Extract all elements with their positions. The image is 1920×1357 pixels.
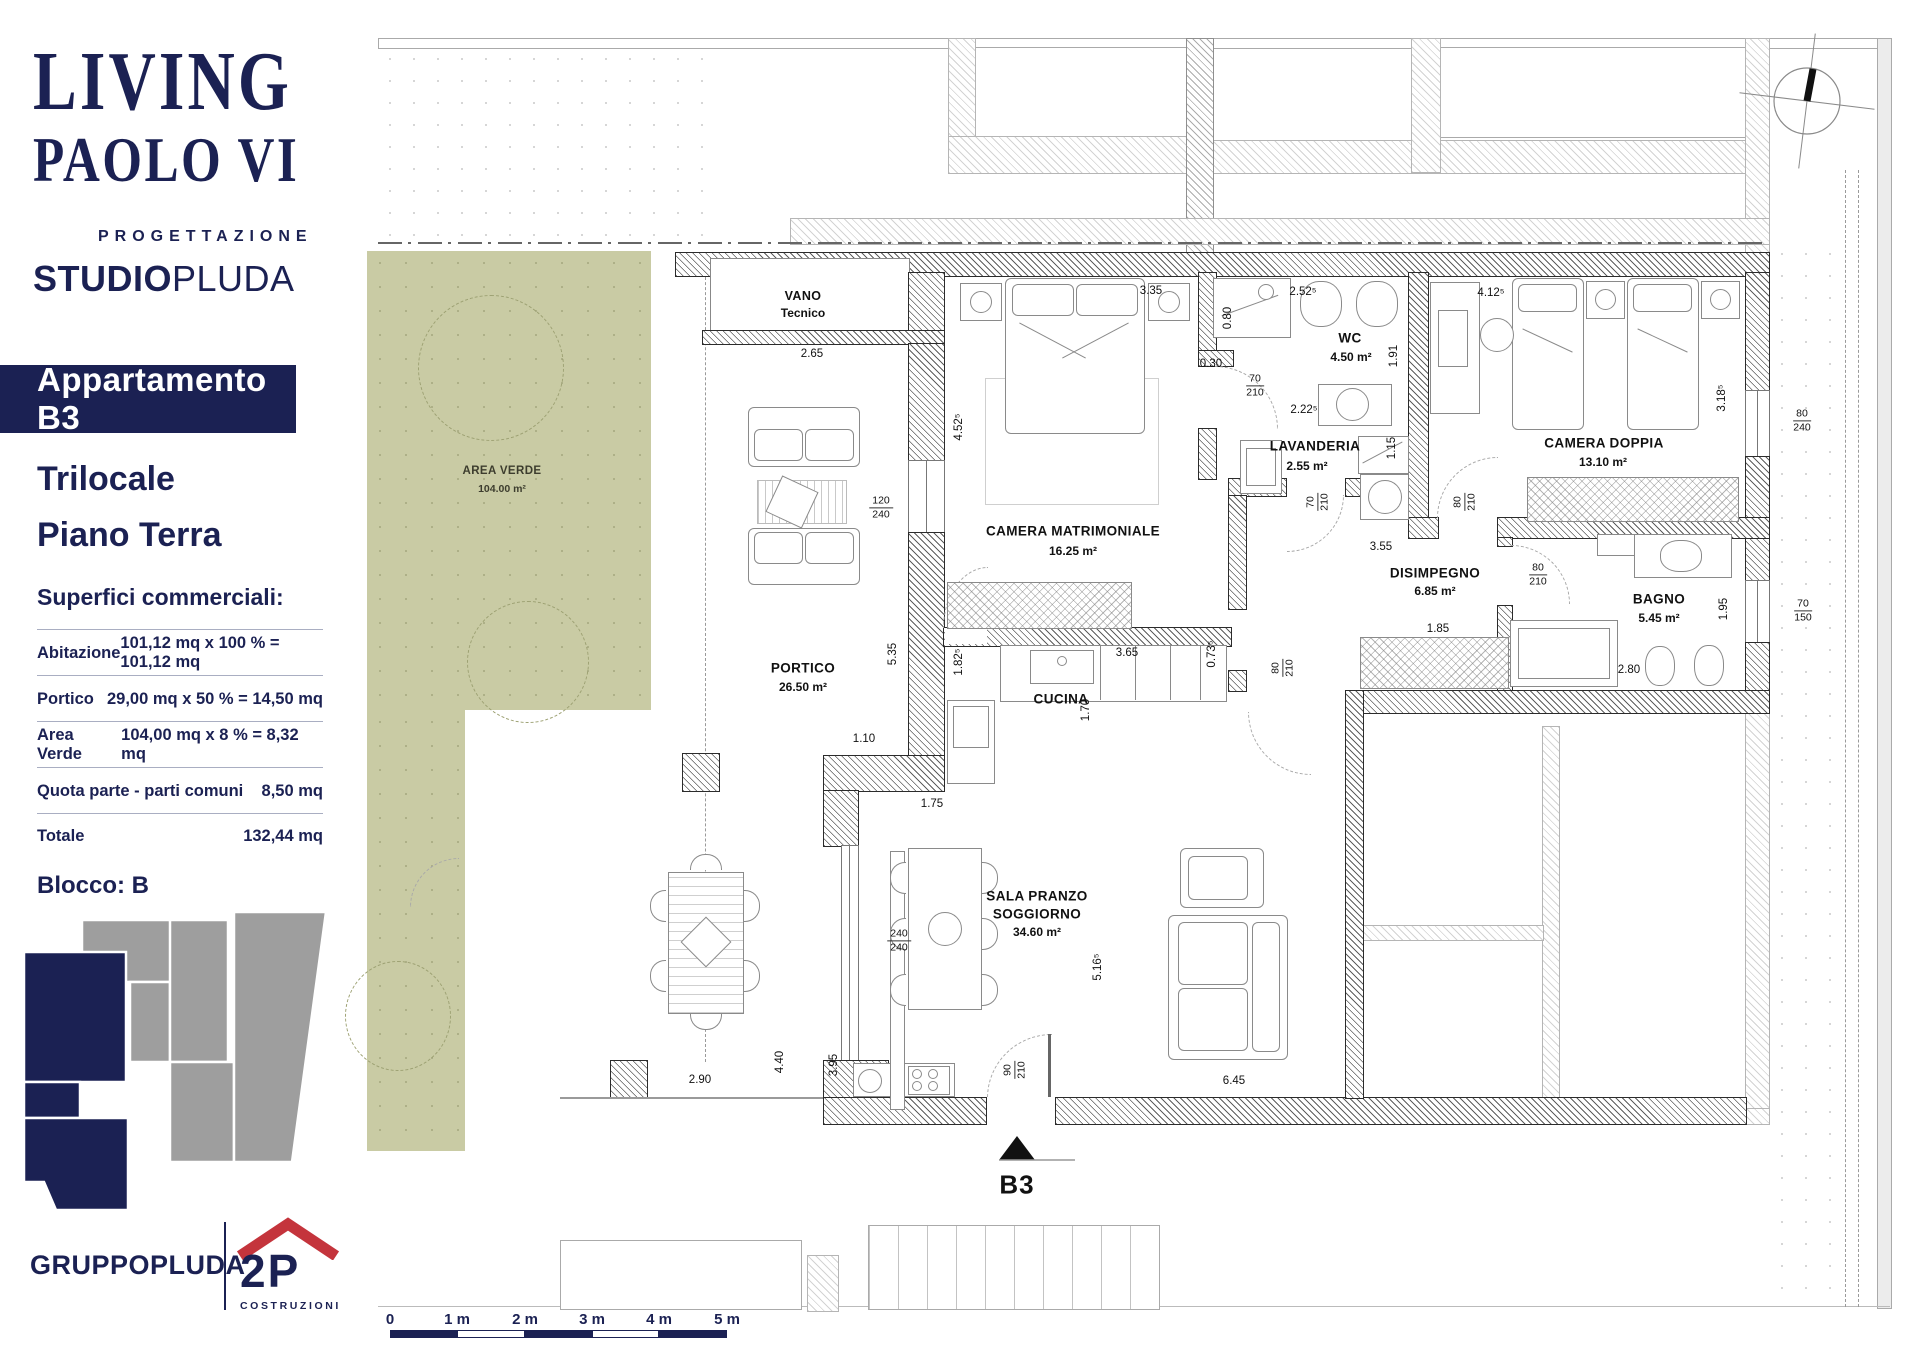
room-label-vano: VANO: [785, 289, 822, 303]
door-height: 210: [1466, 493, 1479, 511]
room-area: 16.25 m²: [1049, 544, 1097, 558]
scale-bar-segment: [390, 1330, 457, 1338]
scale-bar-segment: [592, 1330, 659, 1338]
door-width: 80: [1451, 493, 1465, 511]
dimension: 1.70: [1080, 699, 1092, 721]
toilet: [1645, 646, 1675, 686]
dimension: 1.82⁵: [953, 648, 965, 675]
wall-south: [823, 1097, 987, 1125]
window-size: 70 150: [1794, 597, 1812, 624]
scale-label: 4 m: [646, 1311, 672, 1328]
sofa-cushion: [1178, 922, 1248, 985]
lamp-icon: [1710, 289, 1731, 310]
block-gray: [130, 982, 170, 1062]
scale-label: 1 m: [444, 1311, 470, 1328]
door-size: 70 210: [1304, 493, 1331, 511]
counter-line: [1200, 645, 1201, 700]
window-height: 150: [1794, 612, 1812, 625]
dimension: 4.40: [774, 1051, 786, 1073]
pillow: [1076, 284, 1138, 316]
window-width: 240: [887, 927, 911, 941]
dimension: 0.80: [1222, 307, 1234, 329]
tree-icon: [418, 295, 564, 441]
wall-partition: [1345, 690, 1364, 1099]
bath-cabinet: [1597, 534, 1635, 556]
surfaces-title: Superfici commerciali:: [37, 584, 284, 611]
door-size: 70 210: [1246, 372, 1264, 399]
neighbor-wall: [1411, 38, 1441, 173]
brand-logo-line1: LIVING: [33, 40, 292, 124]
side-yard-texture: [1770, 243, 1843, 1303]
wall-south: [1055, 1097, 1747, 1125]
door-height: 210: [1016, 1061, 1029, 1079]
burner-icon: [928, 1069, 938, 1079]
neighbor-stairs: [868, 1225, 1160, 1310]
2p-costruzioni-label: COSTRUZIONI: [240, 1300, 341, 1312]
neighbor-wall: [948, 136, 1214, 174]
tree-icon: [345, 961, 451, 1071]
room-label: WC: [1338, 331, 1361, 346]
door-size: 80 210: [1529, 561, 1547, 588]
dimension: 2.65: [801, 348, 823, 360]
sofa-backrest: [1252, 922, 1280, 1052]
scale-bar-segment: [457, 1330, 525, 1338]
room-label-area-verde: AREA VERDE: [463, 465, 542, 477]
surface-row: Quota parte - parti comuni 8,50 mq: [37, 767, 323, 814]
tree-icon: [467, 601, 589, 723]
window-height: 240: [890, 942, 908, 955]
neighbor-room: [1440, 47, 1747, 138]
studio-pluda-logo: STUDIOPLUDA: [33, 258, 295, 300]
lamp-icon: [970, 291, 992, 313]
surface-row-label: Quota parte - parti comuni: [37, 782, 243, 801]
dimension: 5.35: [887, 643, 899, 665]
floor-plan-page: LIVING PAOLO VI PROGETTAZIONE STUDIOPLUD…: [0, 0, 1920, 1357]
surface-row-value: 29,00 mq x 50 % = 14,50 mq: [107, 690, 323, 709]
dimension: 1.10: [853, 733, 875, 745]
door-opening: [945, 628, 987, 644]
surface-row-value: 8,50 mq: [262, 782, 323, 801]
site-wall-right: [1877, 38, 1892, 1309]
boundary-dashed-line: [1845, 170, 1846, 1307]
gruppo-logo-bold: PLUDA: [150, 1250, 246, 1280]
room-area: 6.85 m²: [1414, 584, 1455, 598]
dimension: 3.95: [828, 1054, 840, 1076]
window-width: 120: [869, 494, 893, 508]
neighbor-wall: [1212, 140, 1770, 174]
unit-type-label: Trilocale: [37, 460, 175, 499]
surface-row-value: 132,44 mq: [243, 827, 323, 846]
window-width: 80: [1793, 407, 1811, 421]
pillow: [1633, 284, 1692, 312]
scale-label: 0: [386, 1311, 394, 1328]
room-label-vano2: Tecnico: [781, 306, 825, 320]
dimension: 5.16⁵: [1092, 953, 1104, 980]
dimension: 1.95: [1718, 598, 1730, 620]
counter-line: [1100, 645, 1101, 700]
room-label: DISIMPEGNO: [1390, 566, 1480, 581]
dimension: 2.90: [689, 1074, 711, 1086]
room-area: 5.45 m²: [1638, 611, 1679, 625]
armchair-cushion: [1188, 856, 1248, 900]
dimension: 3.55: [1370, 541, 1392, 553]
window-size: 120 240: [869, 494, 893, 521]
toilet: [1356, 281, 1398, 327]
block-gray: [170, 920, 228, 1062]
room-area: 13.10 m²: [1579, 455, 1627, 469]
dimension: 4.52⁵: [953, 413, 965, 440]
sofa-cushion: [754, 429, 803, 461]
wall-partition: [1228, 670, 1247, 692]
gruppo-pluda-logo: GRUPPOPLUDA: [30, 1250, 246, 1281]
door-width: 80: [1529, 561, 1547, 575]
block-b-highlight: [24, 952, 126, 1082]
chair: [744, 890, 760, 922]
chair: [690, 1014, 722, 1030]
window-height: 240: [1793, 422, 1811, 435]
dimension: 2.52⁵: [1289, 286, 1316, 298]
apartment-banner: Appartamento B3: [0, 365, 296, 433]
door-width: 90: [1001, 1061, 1015, 1079]
surface-row: Portico 29,00 mq x 50 % = 14,50 mq: [37, 675, 323, 722]
room-label: SALA PRANZO: [986, 889, 1087, 904]
door-width: 70: [1304, 493, 1318, 511]
portico-column: [610, 1060, 648, 1099]
neighbor-area: [560, 1240, 802, 1310]
sofa-cushion: [1178, 988, 1248, 1051]
room-label: CAMERA MATRIMONIALE: [986, 524, 1160, 539]
surface-row-total: Totale 132,44 mq: [37, 813, 323, 859]
dimension: 3.65: [1116, 647, 1138, 659]
surface-row-label: Area Verde: [37, 726, 121, 764]
portico-edge-line: [560, 1097, 823, 1099]
chair: [650, 960, 666, 992]
paving-texture: [378, 48, 705, 242]
bath-sink-basin: [1660, 540, 1702, 572]
wall-west: [823, 790, 859, 847]
room-label: SOGGIORNO: [993, 907, 1081, 922]
portico-column: [682, 753, 720, 792]
wall-west: [908, 343, 945, 462]
neighbor-wall: [1542, 726, 1560, 1110]
dimension: 0.73⁵: [1206, 640, 1218, 667]
studio-logo-light: PLUDA: [172, 258, 295, 299]
2p-logo: 2P: [240, 1248, 300, 1294]
burner-icon: [928, 1081, 938, 1091]
room-area: 2.55 m²: [1286, 459, 1327, 473]
dimension: 2.22⁵: [1290, 404, 1317, 416]
building-key-plan: [20, 912, 340, 1212]
chair: [690, 854, 722, 870]
wall-step: [823, 755, 945, 792]
window: [1745, 390, 1770, 458]
dimension: 1.75: [921, 798, 943, 810]
neighbor-room: [974, 47, 1188, 138]
property-dashdot-line: [378, 242, 1768, 244]
entrance-arrow-icon: [985, 1130, 1085, 1166]
sofa-cushion: [805, 429, 854, 461]
room-area: 34.60 m²: [1013, 925, 1061, 939]
scale-bar-segment: [525, 1330, 592, 1338]
sofa-cushion: [805, 532, 854, 564]
window-height: 240: [872, 509, 890, 522]
apartment-banner-label: Appartamento B3: [37, 361, 296, 437]
scale-bar-segment: [659, 1330, 727, 1338]
counter-line: [1170, 645, 1171, 700]
neighbor-wall: [1362, 925, 1544, 941]
wall-partition: [1198, 428, 1217, 480]
door-arc: [1248, 712, 1311, 775]
chair: [744, 960, 760, 992]
wardrobe: [947, 582, 1132, 629]
surface-row-value: 104,00 mq x 8 % = 8,32 mq: [121, 726, 323, 764]
window-width: 70: [1794, 597, 1812, 611]
block-b-highlight: [24, 1082, 80, 1118]
laundry-sink-basin: [1246, 448, 1276, 486]
boundary-dashed-line: [1858, 170, 1859, 1307]
door-width: 70: [1246, 372, 1264, 386]
entrance-door-leaf: [1048, 1034, 1051, 1097]
sink-basin: [1336, 388, 1369, 421]
dimension: 3.18⁵: [1716, 384, 1728, 411]
door-size: 80 210: [1269, 659, 1296, 677]
dimension: 4.12⁵: [1477, 287, 1504, 299]
room-label: PORTICO: [771, 661, 835, 676]
faucet-icon: [1057, 656, 1067, 666]
room-area: 26.50 m²: [779, 680, 827, 694]
dimension: 1.91: [1388, 345, 1400, 367]
door-height: 210: [1529, 576, 1547, 589]
gruppo-logo-normal: GRUPPO: [30, 1250, 150, 1280]
window-size: 240 240: [887, 927, 911, 954]
wall-partition: [1228, 495, 1247, 610]
burner-icon: [912, 1081, 922, 1091]
dimension: 0.30: [1200, 358, 1222, 370]
wall-east: [1745, 272, 1770, 392]
scale-label: 3 m: [579, 1311, 605, 1328]
desk-monitor: [1438, 310, 1468, 367]
green-strip: [367, 710, 465, 1151]
room-area: 4.50 m²: [1330, 350, 1371, 364]
scale-label: 5 m: [714, 1311, 740, 1328]
wall-west: [908, 532, 945, 757]
room-label: LAVANDERIA: [1270, 439, 1361, 454]
surface-row-value: 101,12 mq x 100 % = 101,12 mq: [120, 634, 323, 672]
dimension: 3.35: [1140, 285, 1162, 297]
floor-label: Piano Terra: [37, 516, 222, 555]
desk-chair: [1480, 318, 1514, 352]
chair: [982, 974, 998, 1006]
brand-logo-line2: PAOLO VI: [33, 128, 299, 192]
door-height: 210: [1246, 387, 1264, 400]
surface-row-label: Totale: [37, 827, 84, 846]
bathtub-inner: [1518, 628, 1610, 679]
dimension: 1.15: [1386, 437, 1398, 459]
entrance-door-size: 90 210: [1001, 1061, 1028, 1079]
fridge-inner: [953, 706, 989, 748]
window-sliding-glazing: [841, 845, 859, 1062]
shower-head-icon: [1258, 284, 1274, 300]
block-gray-slanted: [234, 912, 326, 1162]
sink-basin: [858, 1069, 882, 1093]
neighbor-wall: [1745, 712, 1770, 1125]
chair: [982, 918, 998, 950]
surface-row: Abitazione 101,12 mq x 100 % = 101,12 mq: [37, 629, 323, 676]
surface-row: Area Verde 104,00 mq x 8 % = 8,32 mq: [37, 721, 323, 768]
wall-partition: [1408, 272, 1429, 519]
sofa-cushion: [754, 532, 803, 564]
window: [1745, 580, 1770, 644]
table-centerpiece: [928, 912, 962, 946]
washing-machine-drum: [1368, 480, 1402, 514]
dimension: 2.80: [1618, 664, 1640, 676]
wall-partition: [1408, 517, 1439, 539]
wardrobe: [1360, 637, 1509, 689]
bidet: [1694, 645, 1724, 686]
neighbor-wall: [807, 1255, 839, 1312]
surface-row-label: Portico: [37, 690, 94, 709]
wardrobe: [1527, 477, 1739, 522]
surface-row-label: Abitazione: [37, 644, 120, 663]
progettazione-label: PROGETTAZIONE: [98, 228, 313, 246]
north-compass-icon: [1737, 33, 1877, 173]
chair: [650, 890, 666, 922]
block-b-highlight: [24, 1118, 128, 1210]
block-label: Blocco: B: [37, 872, 149, 900]
scale-label: 2 m: [512, 1311, 538, 1328]
room-label: CAMERA DOPPIA: [1544, 436, 1663, 451]
room-label: BAGNO: [1633, 592, 1685, 607]
door-size: 80 210: [1451, 493, 1478, 511]
dimension: 6.45: [1223, 1075, 1245, 1087]
window-french: [908, 460, 945, 534]
window-size: 80 240: [1793, 407, 1811, 434]
lamp-icon: [1595, 289, 1616, 310]
room-area-verde-size: 104.00 m²: [478, 483, 526, 495]
burner-icon: [912, 1069, 922, 1079]
door-height: 210: [1284, 659, 1297, 677]
neighbor-wall-band: [790, 218, 1770, 245]
block-gray: [170, 1062, 234, 1162]
door-width: 80: [1269, 659, 1283, 677]
door-height: 210: [1319, 493, 1332, 511]
pillow: [1518, 284, 1577, 312]
footer-divider: [224, 1222, 226, 1310]
studio-logo-bold: STUDIO: [33, 258, 172, 299]
wall-partition: [1362, 690, 1770, 714]
pillow: [1012, 284, 1074, 316]
dimension: 1.85: [1427, 623, 1449, 635]
unit-marker-label: B3: [999, 1170, 1034, 1201]
